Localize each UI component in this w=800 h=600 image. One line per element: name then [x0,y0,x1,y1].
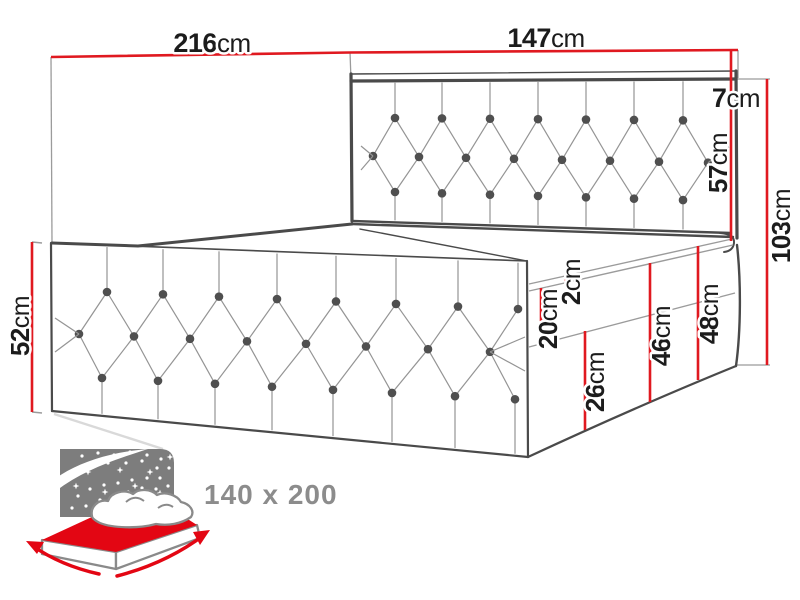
tuft-button [268,382,277,391]
star-dot [102,483,105,486]
dim-label-bed-length: 216cm [173,28,250,58]
star-dot [90,462,93,465]
headboard-top-face-edge [351,71,736,74]
tuft-button [415,153,424,162]
tuft-button [388,389,397,398]
tuft-button [159,290,168,299]
star-dot [130,478,133,481]
tuft-button [329,386,338,395]
tuft-button [154,377,163,386]
tuft-button [211,380,220,389]
tuft-button [273,295,282,304]
tuft-button [582,193,591,202]
star-dot [145,476,148,479]
tuft-button [438,189,447,198]
tuft-line [361,146,373,156]
tuft-button [391,188,400,197]
tuft-line [79,292,107,334]
tuft-button [130,332,139,341]
headboard-top-edge [351,79,735,81]
tuft-line [366,304,396,347]
tuft-button [510,155,519,164]
tuft-line [428,307,458,350]
tuft-line [134,336,158,380]
star-dot [96,451,99,454]
tuft-line [134,294,163,336]
tuft-line [333,346,366,389]
dim-label-base-lower: 26cm [580,352,610,412]
tuft-button [486,190,495,199]
side-panel-right-edge [527,261,528,457]
star-dot [84,504,87,507]
star-dot [158,476,161,479]
tuft-line [659,120,683,161]
tuft-line [490,119,514,159]
tuft-button [534,192,543,201]
tuft-line [190,297,219,339]
star-dot [116,481,119,484]
mattress-left-edge [52,224,352,246]
tuft-button [558,155,567,164]
side-panel-tufting [55,247,525,454]
diagram-drawing: 216cm 147cm 7cm 57cm 103cm 52cm 2cm 20cm… [0,0,800,600]
base-bottom-edge [528,366,736,457]
tuft-line [361,156,373,170]
tuft-line [107,292,134,336]
tuft-line [610,120,634,161]
tuft-line [419,157,442,193]
tuft-button [514,305,523,314]
tuft-button [302,340,311,349]
tuft-line [336,301,366,346]
dim-line-216-147 [51,50,738,57]
tuft-line [277,299,306,344]
tuft-line [247,299,277,341]
dim-label-total-height: 103cm [766,189,796,263]
tuft-line [659,162,683,200]
side-panel-top-edge [52,243,527,261]
dim-label-base-mid: 46cm [646,306,676,366]
tuft-line [392,349,428,393]
tuft-button [438,114,447,123]
tuft-button [606,156,615,165]
extension-tick-52-top [32,242,42,243]
tuft-line [466,158,490,195]
tuft-line [55,334,79,352]
star-dot [106,461,109,464]
tuft-line [562,120,586,160]
tuft-button [424,345,433,354]
dim-label-headboard-width: 147cm [507,23,584,53]
star-dot [159,457,162,460]
tuft-button [679,196,688,205]
star-dot [88,487,91,490]
bed-dimension-diagram: 216cm 147cm 7cm 57cm 103cm 52cm 2cm 20cm… [0,0,800,600]
tuft-line [215,341,247,384]
tuft-line [306,344,333,390]
tuft-button [511,395,520,404]
tuft-line [419,118,442,157]
tuft-line [634,162,659,199]
tuft-line [442,118,466,157]
tuft-line [514,159,538,196]
tuft-button [534,115,543,124]
dimension-lines [32,50,767,430]
star-dot [140,459,143,462]
dim-label-mattress: 20cm [533,289,563,349]
tuft-button [392,300,401,309]
tuft-line [366,346,392,392]
star-dot [124,461,127,464]
tuft-line [219,297,247,342]
tuft-line [190,339,215,384]
tuft-button [215,292,224,301]
dim-label-headboard-height: 57cm [703,133,733,193]
star-dot [112,453,115,456]
tuft-line [396,304,428,349]
tuft-button [391,114,400,123]
tuft-line [373,118,395,156]
star-dot [80,454,83,457]
tuft-button [582,115,591,124]
tuft-line [634,120,659,162]
star-dot [166,484,169,487]
dim-label-side-height: 52cm [5,296,35,356]
tuft-button [332,297,341,306]
tuft-button [462,154,471,163]
star-dot [70,506,73,509]
tuft-button [486,114,495,123]
bed-right-contour [736,245,740,366]
tuft-line [272,344,306,387]
star-dot [154,487,157,490]
tuft-line [586,161,610,198]
tuft-button [630,194,639,203]
headboard-tufting [361,81,729,229]
tuft-button [655,157,664,166]
star-dot [76,494,79,497]
tuft-line [442,158,466,193]
headboard-left-edge [351,74,352,221]
tuft-line [428,349,455,396]
extension-line-left [51,57,52,242]
tuft-line [538,119,562,160]
tuft-line [395,157,419,192]
tuft-button [362,342,371,351]
tuft-line [538,160,562,196]
star-dot [167,466,170,469]
tuft-line [306,301,336,343]
extension-tick-52-bottom [32,412,42,413]
tuft-line [55,318,79,334]
dim-label-headboard-top: 7cm [712,83,760,113]
tuft-line [458,307,490,352]
tuft-button [243,337,252,346]
side-panel-left-edge [51,243,52,411]
tuft-line [158,339,190,381]
tuft-line [586,120,610,161]
dim-label-base-top: 48cm [694,284,724,344]
tuft-line [610,161,634,199]
bed-size-icon [26,449,210,576]
size-badge: 140 x 200 [204,479,338,510]
star-dot [128,450,131,453]
tuft-line [373,156,395,192]
tuft-line [395,118,419,157]
star-dot [145,453,148,456]
tuft-button [454,302,463,311]
tuft-line [562,160,586,198]
tuft-line [514,119,538,159]
tuft-line [490,159,514,195]
tuft-button [98,374,107,383]
tuft-line [163,294,190,339]
tuft-button [451,392,460,401]
star-dot [155,466,158,469]
tuft-line [102,336,134,378]
tuft-line [79,334,102,378]
tuft-line [455,352,490,396]
tuft-button [679,116,688,125]
tuft-button [186,335,195,344]
tuft-line [247,341,272,386]
tuft-button [630,116,639,125]
tuft-button [103,288,112,297]
tuft-line [466,119,490,158]
